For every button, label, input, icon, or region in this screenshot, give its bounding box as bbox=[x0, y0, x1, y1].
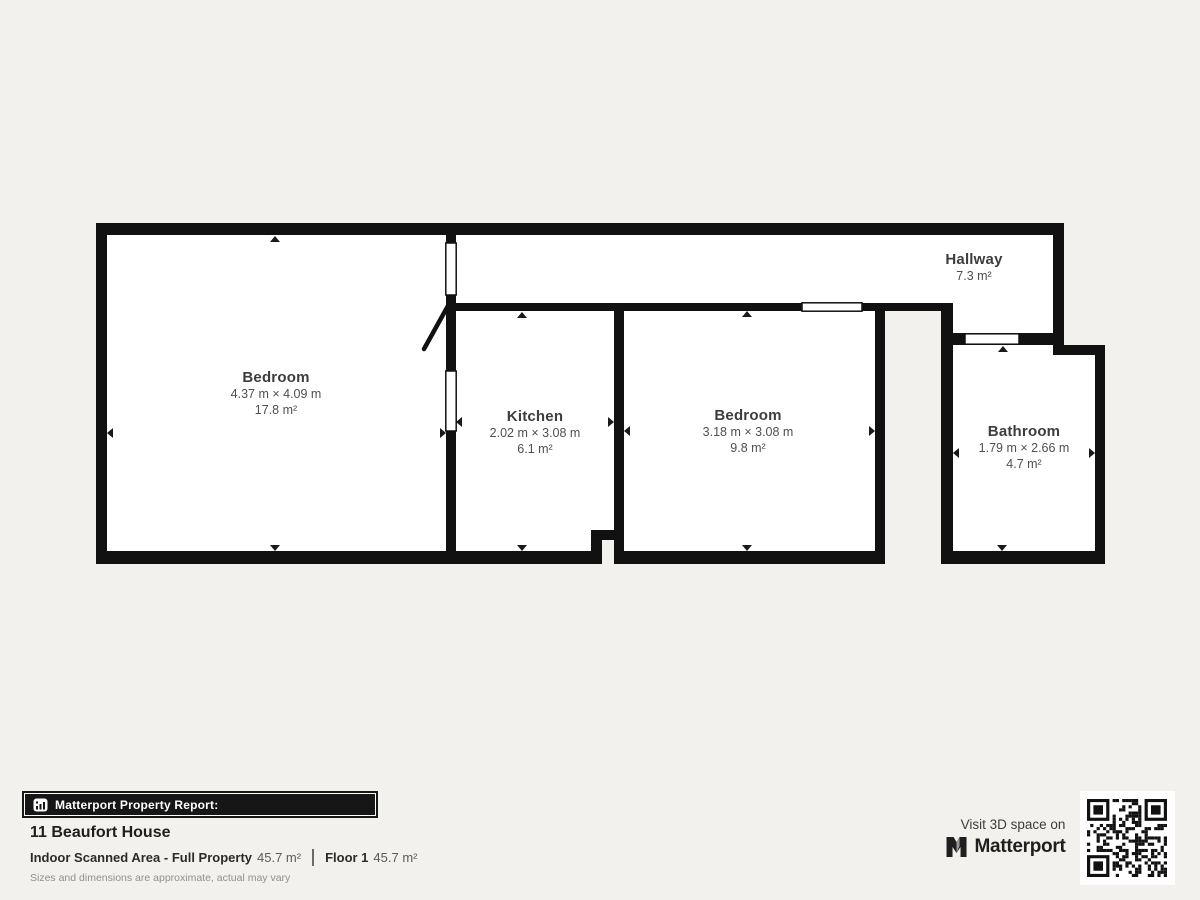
matterport-logo-icon bbox=[945, 836, 969, 858]
room-area: 7.3 m² bbox=[945, 269, 1002, 284]
report-bar-label: Matterport Property Report: bbox=[55, 798, 218, 812]
report-title-bar: Matterport Property Report: bbox=[24, 793, 376, 816]
room-name: Bedroom bbox=[231, 370, 322, 386]
room-area: 9.8 m² bbox=[703, 441, 794, 456]
property-name: 11 Beaufort House bbox=[30, 824, 170, 842]
qr-code-card bbox=[1080, 791, 1175, 885]
room-label-bedroom-1: Bedroom 4.37 m × 4.09 m 17.8 m² bbox=[231, 370, 322, 417]
room-name: Kitchen bbox=[490, 409, 581, 425]
matterport-logo: Matterport bbox=[945, 836, 1066, 858]
room-dimensions: 1.79 m × 2.66 m bbox=[979, 441, 1070, 456]
floor-value: 45.7 m² bbox=[373, 850, 417, 865]
room-name: Hallway bbox=[945, 252, 1002, 268]
room-label-kitchen: Kitchen 2.02 m × 3.08 m 6.1 m² bbox=[490, 409, 581, 456]
room-name: Bathroom bbox=[979, 424, 1070, 440]
matterport-wordmark: Matterport bbox=[975, 836, 1066, 858]
matterport-floorplan-report: Bedroom 4.37 m × 4.09 m 17.8 m² Kitchen … bbox=[0, 0, 1200, 900]
room-dimensions: 2.02 m × 3.08 m bbox=[490, 426, 581, 441]
stats-divider bbox=[312, 849, 314, 866]
room-area: 17.8 m² bbox=[231, 403, 322, 418]
room-dimensions: 4.37 m × 4.09 m bbox=[231, 387, 322, 402]
qr-code bbox=[1087, 799, 1167, 877]
door-opening-bedroom2 bbox=[802, 303, 862, 311]
room-label-bedroom-2: Bedroom 3.18 m × 3.08 m 9.8 m² bbox=[703, 408, 794, 455]
room-area: 6.1 m² bbox=[490, 442, 581, 457]
exterior-notch bbox=[602, 540, 614, 564]
floor-label: Floor 1 bbox=[325, 850, 368, 865]
scanned-area-stats: Indoor Scanned Area - Full Property 45.7… bbox=[30, 849, 418, 866]
disclaimer-text: Sizes and dimensions are approximate, ac… bbox=[30, 872, 290, 884]
scanned-area-label: Indoor Scanned Area - Full Property bbox=[30, 850, 252, 865]
property-report-icon bbox=[33, 798, 48, 812]
room-name: Bedroom bbox=[703, 408, 794, 424]
door-opening-bedroom-hallway bbox=[446, 243, 456, 295]
room-label-hallway: Hallway 7.3 m² bbox=[945, 252, 1002, 284]
room-label-bathroom: Bathroom 1.79 m × 2.66 m 4.7 m² bbox=[979, 424, 1070, 471]
window-bedroom-kitchen bbox=[446, 371, 456, 431]
scanned-area-value: 45.7 m² bbox=[257, 850, 301, 865]
door-opening-bathroom bbox=[965, 334, 1019, 344]
room-dimensions: 3.18 m × 3.08 m bbox=[703, 425, 794, 440]
room-area: 4.7 m² bbox=[979, 457, 1070, 472]
visit-3d-text: Visit 3D space on bbox=[961, 817, 1066, 832]
